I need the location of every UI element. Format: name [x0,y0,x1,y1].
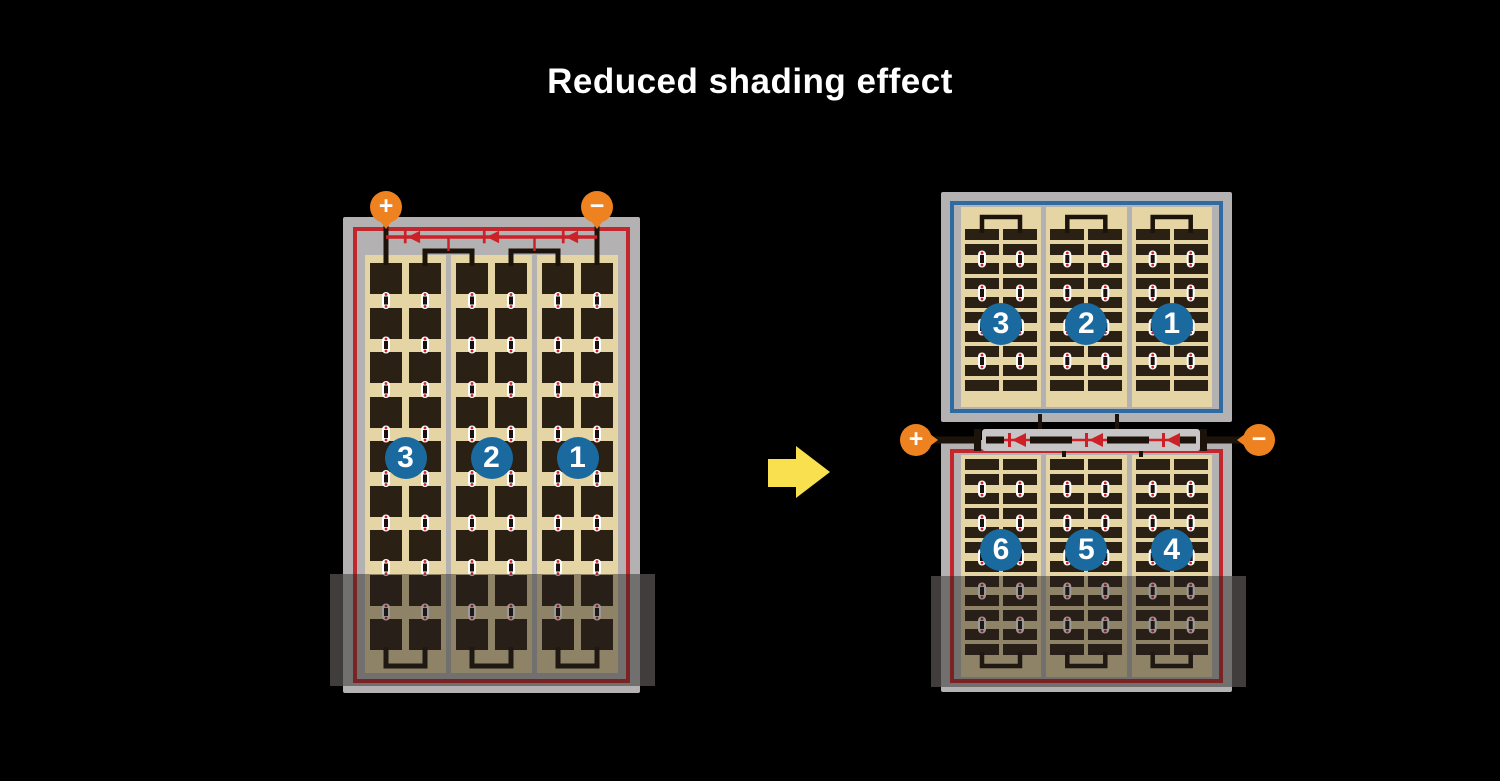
diagram-canvas: Reduced shading effect +−321321654+− [0,0,1500,781]
arrow-shaft [768,459,798,487]
transform-arrow-icon [768,446,832,498]
arrow-head [796,446,830,498]
junction-negative-terminal: − [1243,424,1275,456]
string-number-badge: 2 [471,437,513,479]
positive-terminal: + [370,191,402,223]
page-title: Reduced shading effect [0,62,1500,102]
string-number-badge: 3 [980,303,1022,345]
junction-negative-terminal-tail [1237,434,1245,446]
junction-positive-terminal: + [900,424,932,456]
string-number-badge: 6 [980,529,1022,571]
labels-layer: +−321321654+− [0,0,1500,781]
string-number-label: 3 [993,309,1010,339]
string-number-label: 5 [1078,535,1095,565]
string-number-label: 6 [993,535,1010,565]
positive-terminal-label: + [379,194,394,219]
string-number-badge: 1 [557,437,599,479]
string-number-label: 3 [397,443,414,473]
junction-positive-terminal-label: + [909,427,924,452]
negative-terminal-label: − [590,194,605,219]
string-number-label: 4 [1163,535,1180,565]
positive-terminal-tail [380,221,392,229]
string-number-label: 1 [1163,309,1180,339]
string-number-badge: 1 [1151,303,1193,345]
negative-terminal-tail [591,221,603,229]
junction-negative-terminal-label: − [1252,427,1267,452]
string-number-badge: 5 [1065,529,1107,571]
string-number-label: 2 [1078,309,1095,339]
string-number-badge: 4 [1151,529,1193,571]
string-number-badge: 2 [1065,303,1107,345]
string-number-label: 2 [483,443,500,473]
string-number-badge: 3 [385,437,427,479]
negative-terminal: − [581,191,613,223]
string-number-label: 1 [569,443,586,473]
junction-positive-terminal-tail [930,434,938,446]
